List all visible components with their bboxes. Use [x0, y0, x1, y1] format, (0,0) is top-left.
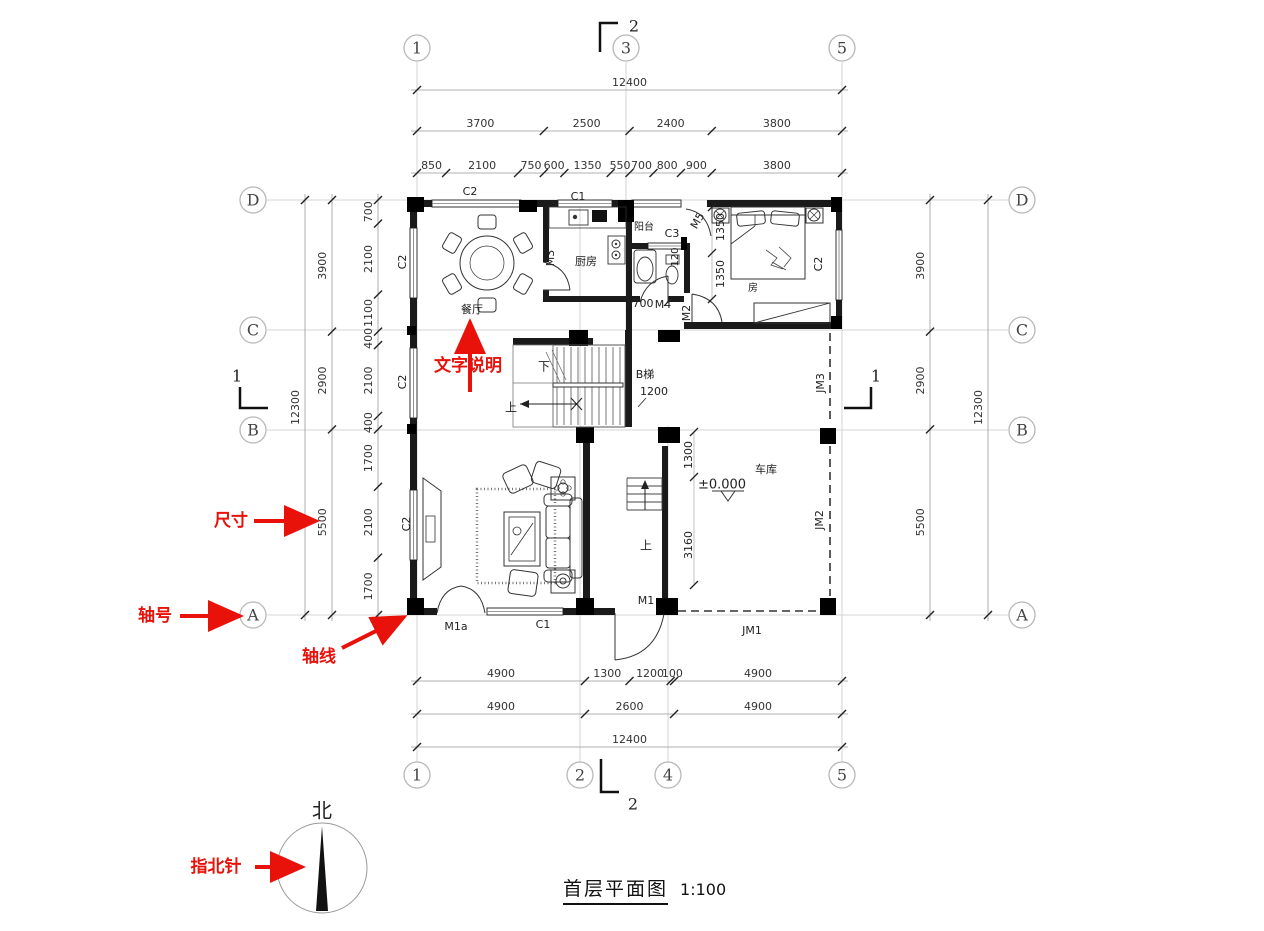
- dim-value: 2100: [362, 508, 375, 536]
- dim-value: 2900: [914, 367, 927, 395]
- axis-bubble-A-left: A: [246, 606, 259, 625]
- dim-value: 2400: [657, 117, 685, 130]
- axis-bubble-B-right: B: [1016, 421, 1028, 440]
- column: [681, 237, 687, 250]
- plan-shape: [520, 400, 529, 408]
- column: [820, 428, 836, 444]
- plan-shape: [731, 207, 805, 215]
- column: [407, 197, 424, 212]
- plan-shape: [512, 273, 533, 296]
- axis-bubble-C-left: C: [247, 321, 259, 340]
- anno-compass: 指北针: [191, 856, 242, 877]
- section-markers: 2211: [232, 17, 881, 814]
- room-balcony: 阳台: [634, 220, 654, 233]
- section-marker-label: 1: [232, 367, 242, 386]
- wall: [632, 243, 648, 249]
- jm3-label: JM3: [814, 373, 827, 394]
- plan-shape: [316, 826, 328, 911]
- plan-shape: [555, 486, 559, 490]
- win-c2-left-upper: C2: [396, 255, 409, 270]
- dim-value: 12300: [972, 390, 985, 425]
- wall: [583, 430, 590, 608]
- axis-bubble-B-left: B: [247, 421, 259, 440]
- dim-value: 3700: [466, 117, 494, 130]
- axis-bubble-1-top: 1: [412, 39, 422, 58]
- plan-shape: [569, 210, 588, 225]
- plan-shape: [561, 480, 565, 484]
- dim-value: 1200: [636, 667, 664, 680]
- dim-value: 2100: [362, 245, 375, 273]
- level-label: ±0.000: [698, 478, 746, 493]
- plan-shape: [615, 254, 617, 256]
- axis-bubble-C-right: C: [1016, 321, 1028, 340]
- plan-shape: [460, 236, 514, 290]
- wall: [543, 296, 632, 302]
- dim-value: 1100: [362, 299, 375, 327]
- plan-shape: [573, 215, 577, 219]
- door-swing: [615, 613, 664, 660]
- section-marker-label: 2: [629, 17, 639, 36]
- plan-shape: [592, 210, 607, 222]
- anno-text-note: 文字说明: [434, 355, 502, 376]
- compass-north: 北: [312, 799, 332, 823]
- axis-bubble-1-bottom: 1: [412, 766, 422, 785]
- door-m1: M1: [638, 594, 655, 607]
- door-m5: M5: [688, 210, 708, 231]
- column: [576, 598, 594, 615]
- door-swing: [692, 294, 722, 322]
- win-c2-left-mid: C2: [396, 375, 409, 390]
- dim-value: 3900: [914, 252, 927, 280]
- dim-value: 1700: [362, 444, 375, 472]
- dim-value: 1350: [574, 159, 602, 172]
- plan-shape: [770, 211, 799, 227]
- jm2-label: JM2: [813, 510, 826, 531]
- section-marker-bracket: [601, 759, 619, 792]
- win-c2-top: C2: [463, 185, 478, 198]
- dim-value: 3800: [763, 117, 791, 130]
- column: [576, 427, 594, 443]
- dim-value: 2100: [468, 159, 496, 172]
- room-dining: 餐厅: [461, 302, 483, 316]
- floor-plan-page: 1240037002500240038008502100750600135055…: [0, 0, 1264, 931]
- column: [658, 330, 680, 342]
- plan-shape: [530, 461, 562, 490]
- dim-value: 3800: [763, 159, 791, 172]
- plan-shape: [637, 257, 653, 281]
- column: [658, 427, 680, 443]
- dim-value: 4900: [744, 667, 772, 680]
- dim-value: 1300: [593, 667, 621, 680]
- drawing-title: 首层平面图1:100: [563, 874, 726, 901]
- dim-value: 400: [362, 328, 375, 349]
- axis-bubble-D-right: D: [1016, 191, 1029, 210]
- win-c2-bedroom: C2: [812, 257, 825, 272]
- dim-3160: 3160: [682, 531, 695, 559]
- stair-name: B梯: [636, 368, 655, 381]
- plan-shape: [754, 303, 830, 323]
- door-m4: M4: [655, 298, 672, 311]
- wall: [662, 446, 668, 598]
- floor-plan-drawing: 1240037002500240038008502100750600135055…: [0, 0, 1264, 931]
- win-c2-left-lower: C2: [400, 517, 413, 532]
- plan-shape: [441, 273, 462, 296]
- plan-shape: [512, 232, 533, 255]
- walls: [410, 200, 842, 615]
- plan-shape: [553, 383, 623, 387]
- win-c1-bottom: C1: [536, 618, 551, 631]
- wall: [410, 298, 417, 348]
- plan-shape: [560, 578, 566, 584]
- dim-120: 120: [670, 247, 681, 266]
- win-c3: C3: [665, 227, 680, 240]
- wall: [625, 330, 632, 427]
- plan-shape: [615, 243, 617, 245]
- door-m2: M2: [680, 305, 693, 322]
- plan-shape: [666, 266, 678, 284]
- column: [407, 598, 424, 615]
- plan-shape: [638, 398, 646, 407]
- anno-axis-line-arrow: [342, 617, 404, 648]
- dim-value: 4900: [487, 667, 515, 680]
- plan-shape: [736, 211, 765, 227]
- dim-value: 700: [631, 159, 652, 172]
- door-m3: M3: [544, 250, 557, 267]
- axis-bubble-2-bottom: 2: [575, 766, 585, 785]
- door-swing: [437, 586, 485, 613]
- win-c1-top: C1: [571, 190, 586, 203]
- dim-value: 5500: [914, 508, 927, 536]
- anno-axis-line: 轴线: [302, 646, 336, 667]
- dim-1350-lower: 1350: [714, 260, 727, 288]
- plan-shape: [731, 215, 755, 244]
- dim-1350-upper: 1350: [714, 213, 727, 241]
- plan-shape: [556, 574, 570, 588]
- dim-700: 700: [633, 297, 654, 310]
- axis-bubble-D-left: D: [247, 191, 260, 210]
- dim-value: 700: [362, 201, 375, 222]
- dim-value: 800: [657, 159, 678, 172]
- plan-shape: [426, 516, 435, 542]
- column: [519, 200, 537, 212]
- room-bedroom: 房: [748, 281, 758, 294]
- dim-value: 400: [362, 412, 375, 433]
- axis-bubble-5-top: 5: [837, 39, 847, 58]
- column: [831, 316, 842, 329]
- wall: [626, 207, 632, 345]
- dim-value: 850: [421, 159, 442, 172]
- plan-shape: [567, 486, 571, 490]
- axis-bubble-5-bottom: 5: [837, 766, 847, 785]
- axis-bubble-4-bottom: 4: [663, 766, 673, 785]
- dim-1200: 1200: [640, 385, 668, 398]
- plan-shape: [731, 215, 805, 279]
- plan-shape: [441, 232, 462, 255]
- section-marker-bracket: [240, 387, 268, 408]
- dim-value: 2600: [615, 700, 643, 713]
- dim-value: 600: [544, 159, 565, 172]
- door-m1a: M1a: [444, 620, 467, 633]
- dimension-lines: 1240037002500240038008502100750600135055…: [289, 76, 992, 751]
- room-garage: 车库: [755, 462, 777, 476]
- dim-value: 100: [662, 667, 683, 680]
- wall: [684, 243, 690, 293]
- anno-axis-number: 轴号: [138, 605, 172, 626]
- stair-down-label: 下: [538, 360, 550, 374]
- dashed-openings: [678, 333, 830, 611]
- dim-value: 12400: [612, 76, 647, 89]
- dim-value: 2500: [573, 117, 601, 130]
- dim-value: 3900: [316, 252, 329, 280]
- dim-value: 5500: [316, 508, 329, 536]
- column: [820, 598, 836, 615]
- section-marker-bracket: [844, 387, 871, 408]
- section-marker-label: 2: [628, 795, 638, 814]
- dim-value: 4900: [487, 700, 515, 713]
- plan-shape: [470, 246, 504, 280]
- dim-value: 550: [610, 159, 631, 172]
- dim-value: 12400: [612, 733, 647, 746]
- wall: [707, 200, 842, 207]
- plan-shape: [721, 491, 735, 501]
- plan-shape: [546, 506, 570, 538]
- drawing-title-text: 首层平面图: [563, 878, 668, 905]
- dim-value: 4900: [744, 700, 772, 713]
- column: [407, 326, 416, 335]
- dim-value: 12300: [289, 390, 302, 425]
- dim-value: 900: [686, 159, 707, 172]
- column: [831, 197, 842, 212]
- drawing-scale: 1:100: [680, 880, 726, 899]
- anno-dimension: 尺寸: [214, 510, 248, 531]
- dim-value: 750: [520, 159, 541, 172]
- dim-value: 1700: [362, 572, 375, 600]
- plan-shape: [766, 247, 791, 270]
- axis-bubble-A-right: A: [1015, 606, 1028, 625]
- plan-shape: [513, 345, 553, 427]
- column: [407, 424, 416, 434]
- section-marker-label: 1: [871, 367, 881, 386]
- stair-up-label: 上: [505, 401, 517, 415]
- red-annotations: 文字说明尺寸轴号轴线指北针: [138, 322, 502, 877]
- plan-shape: [478, 215, 496, 229]
- furniture-and-symbols: [277, 203, 830, 913]
- plan-shape: [641, 480, 649, 489]
- column: [656, 598, 678, 615]
- room-kitchen: 厨房: [575, 255, 597, 268]
- dim-value: 2900: [316, 367, 329, 395]
- dim-1300: 1300: [682, 441, 695, 469]
- jm1-label: JM1: [741, 624, 762, 637]
- plan-shape: [546, 538, 570, 568]
- hall-up-label: 上: [640, 539, 652, 553]
- axis-bubble-3-top: 3: [621, 39, 631, 58]
- dim-value: 2100: [362, 367, 375, 395]
- column: [569, 330, 588, 346]
